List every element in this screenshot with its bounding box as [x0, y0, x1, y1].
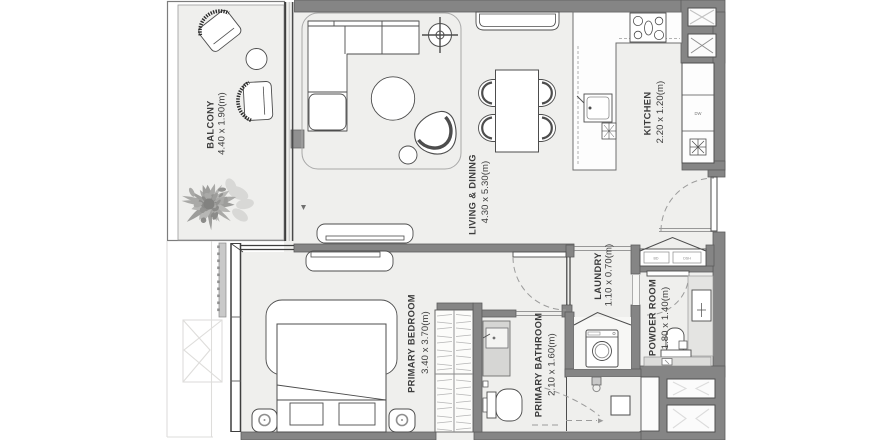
svg-text:LAUNDRY: LAUNDRY	[593, 252, 603, 300]
svg-text:2.10 x 1.60(m): 2.10 x 1.60(m)	[547, 333, 558, 396]
svg-text:1.10 x 0.70(m): 1.10 x 0.70(m)	[604, 244, 615, 307]
svg-text:PRIMARY BEDROOM: PRIMARY BEDROOM	[407, 294, 417, 393]
svg-text:LIVING & DINING: LIVING & DINING	[468, 154, 478, 235]
svg-text:DW: DW	[695, 111, 702, 116]
svg-text:3.40 x 3.70(m): 3.40 x 3.70(m)	[420, 311, 431, 374]
svg-text:4.40 x 1.90(m): 4.40 x 1.90(m)	[217, 92, 228, 155]
svg-text:POWDER ROOM: POWDER ROOM	[648, 279, 658, 356]
svg-text:2.20 x 1.20(m): 2.20 x 1.20(m)	[655, 81, 666, 144]
svg-text:PRIMARY BATHROOM: PRIMARY BATHROOM	[534, 313, 544, 418]
svg-text:4.30 x 5.30(m): 4.30 x 5.30(m)	[480, 161, 491, 224]
svg-text:DSH: DSH	[683, 257, 691, 261]
svg-text:1.80 x 1.40(m): 1.80 x 1.40(m)	[660, 287, 671, 350]
svg-text:BALCONY: BALCONY	[206, 100, 216, 149]
svg-text:KITCHEN: KITCHEN	[643, 92, 653, 136]
svg-text:BD: BD	[654, 257, 659, 261]
